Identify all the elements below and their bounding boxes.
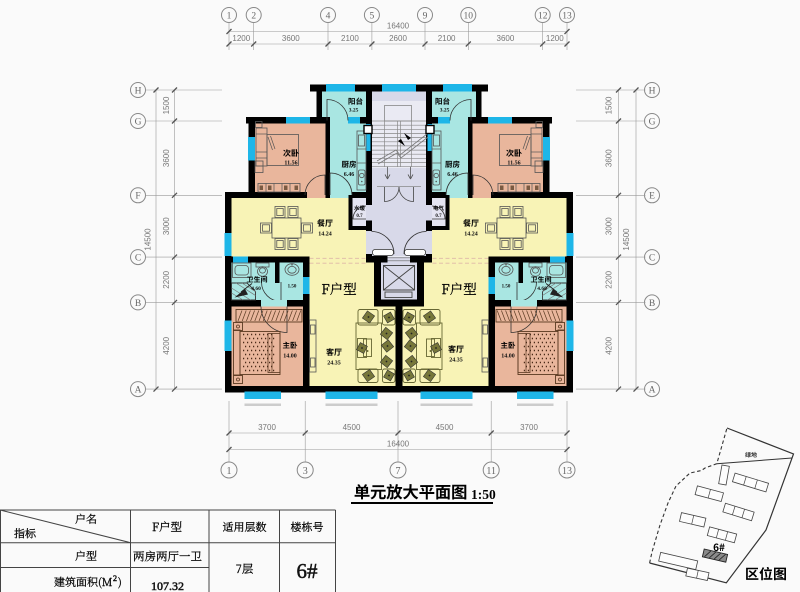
svg-text:3700: 3700 — [520, 423, 538, 432]
svg-text:14.00: 14.00 — [501, 354, 515, 360]
svg-text:11.56: 11.56 — [507, 161, 520, 167]
svg-text:24.35: 24.35 — [327, 361, 341, 367]
svg-text:2100: 2100 — [341, 34, 359, 43]
svg-text:10: 10 — [464, 11, 474, 21]
svg-text:4: 4 — [326, 11, 331, 21]
svg-text:12: 12 — [538, 11, 548, 21]
svg-text:4.60: 4.60 — [537, 286, 547, 292]
svg-text:A: A — [649, 386, 656, 396]
svg-text:3.25: 3.25 — [440, 108, 450, 114]
svg-text:14.24: 14.24 — [464, 232, 478, 238]
svg-text:3000: 3000 — [605, 217, 614, 235]
svg-text:F: F — [135, 192, 140, 202]
svg-text:C: C — [649, 254, 655, 264]
svg-text:3: 3 — [303, 466, 308, 477]
svg-text:2: 2 — [251, 11, 256, 21]
svg-text:4500: 4500 — [343, 423, 361, 432]
svg-text:1.50: 1.50 — [288, 285, 297, 290]
svg-text:3600: 3600 — [605, 149, 614, 167]
svg-text:6#: 6# — [297, 559, 319, 583]
svg-text:G: G — [135, 117, 142, 127]
svg-text:107.32: 107.32 — [151, 579, 184, 592]
svg-text:2600: 2600 — [389, 34, 407, 43]
svg-text:2: 2 — [113, 574, 117, 583]
svg-text:3600: 3600 — [282, 34, 300, 43]
svg-text:1: 1 — [227, 466, 232, 477]
svg-text:0.7: 0.7 — [356, 214, 363, 219]
svg-text:1:50: 1:50 — [471, 487, 496, 502]
svg-text:4200: 4200 — [605, 336, 614, 354]
svg-text:2200: 2200 — [162, 270, 171, 288]
svg-text:6.46: 6.46 — [344, 172, 355, 178]
svg-text:24.35: 24.35 — [449, 358, 463, 364]
svg-text:3700: 3700 — [258, 423, 276, 432]
svg-text:1200: 1200 — [232, 34, 250, 43]
svg-text:7: 7 — [396, 466, 401, 477]
svg-text:9: 9 — [423, 11, 428, 21]
svg-text:1500: 1500 — [605, 96, 614, 114]
svg-text:5: 5 — [370, 11, 375, 21]
svg-text:14.24: 14.24 — [318, 232, 332, 238]
svg-text:2100: 2100 — [438, 34, 456, 43]
svg-text:11: 11 — [486, 466, 496, 477]
svg-text:14500: 14500 — [144, 228, 153, 251]
svg-text:13: 13 — [562, 11, 572, 21]
svg-text:4.60: 4.60 — [251, 286, 261, 292]
svg-text:4200: 4200 — [162, 336, 171, 354]
svg-text:1: 1 — [227, 11, 232, 21]
svg-text:3.25: 3.25 — [349, 108, 359, 114]
svg-text:0.7: 0.7 — [435, 214, 442, 219]
svg-text:3600: 3600 — [162, 149, 171, 167]
svg-text:C: C — [135, 254, 141, 264]
svg-text:4500: 4500 — [436, 423, 454, 432]
svg-text:1500: 1500 — [162, 96, 171, 114]
svg-text:B: B — [135, 299, 141, 309]
svg-text:H: H — [649, 86, 656, 96]
svg-text:14500: 14500 — [622, 228, 631, 251]
svg-text:13: 13 — [562, 466, 572, 477]
svg-text:1200: 1200 — [546, 34, 564, 43]
svg-text:E: E — [649, 192, 655, 202]
svg-text:6.46: 6.46 — [447, 172, 458, 178]
svg-text:2200: 2200 — [605, 270, 614, 288]
svg-text:16400: 16400 — [387, 440, 410, 449]
svg-text:16400: 16400 — [387, 22, 410, 31]
svg-text:A: A — [135, 386, 142, 396]
svg-text:11.56: 11.56 — [284, 161, 297, 167]
svg-text:H: H — [135, 86, 142, 96]
svg-text:1.50: 1.50 — [502, 285, 511, 290]
svg-text:3600: 3600 — [497, 34, 515, 43]
svg-text:14.00: 14.00 — [283, 354, 297, 360]
svg-text:B: B — [649, 299, 655, 309]
svg-text:G: G — [649, 117, 656, 127]
svg-text:3000: 3000 — [162, 217, 171, 235]
